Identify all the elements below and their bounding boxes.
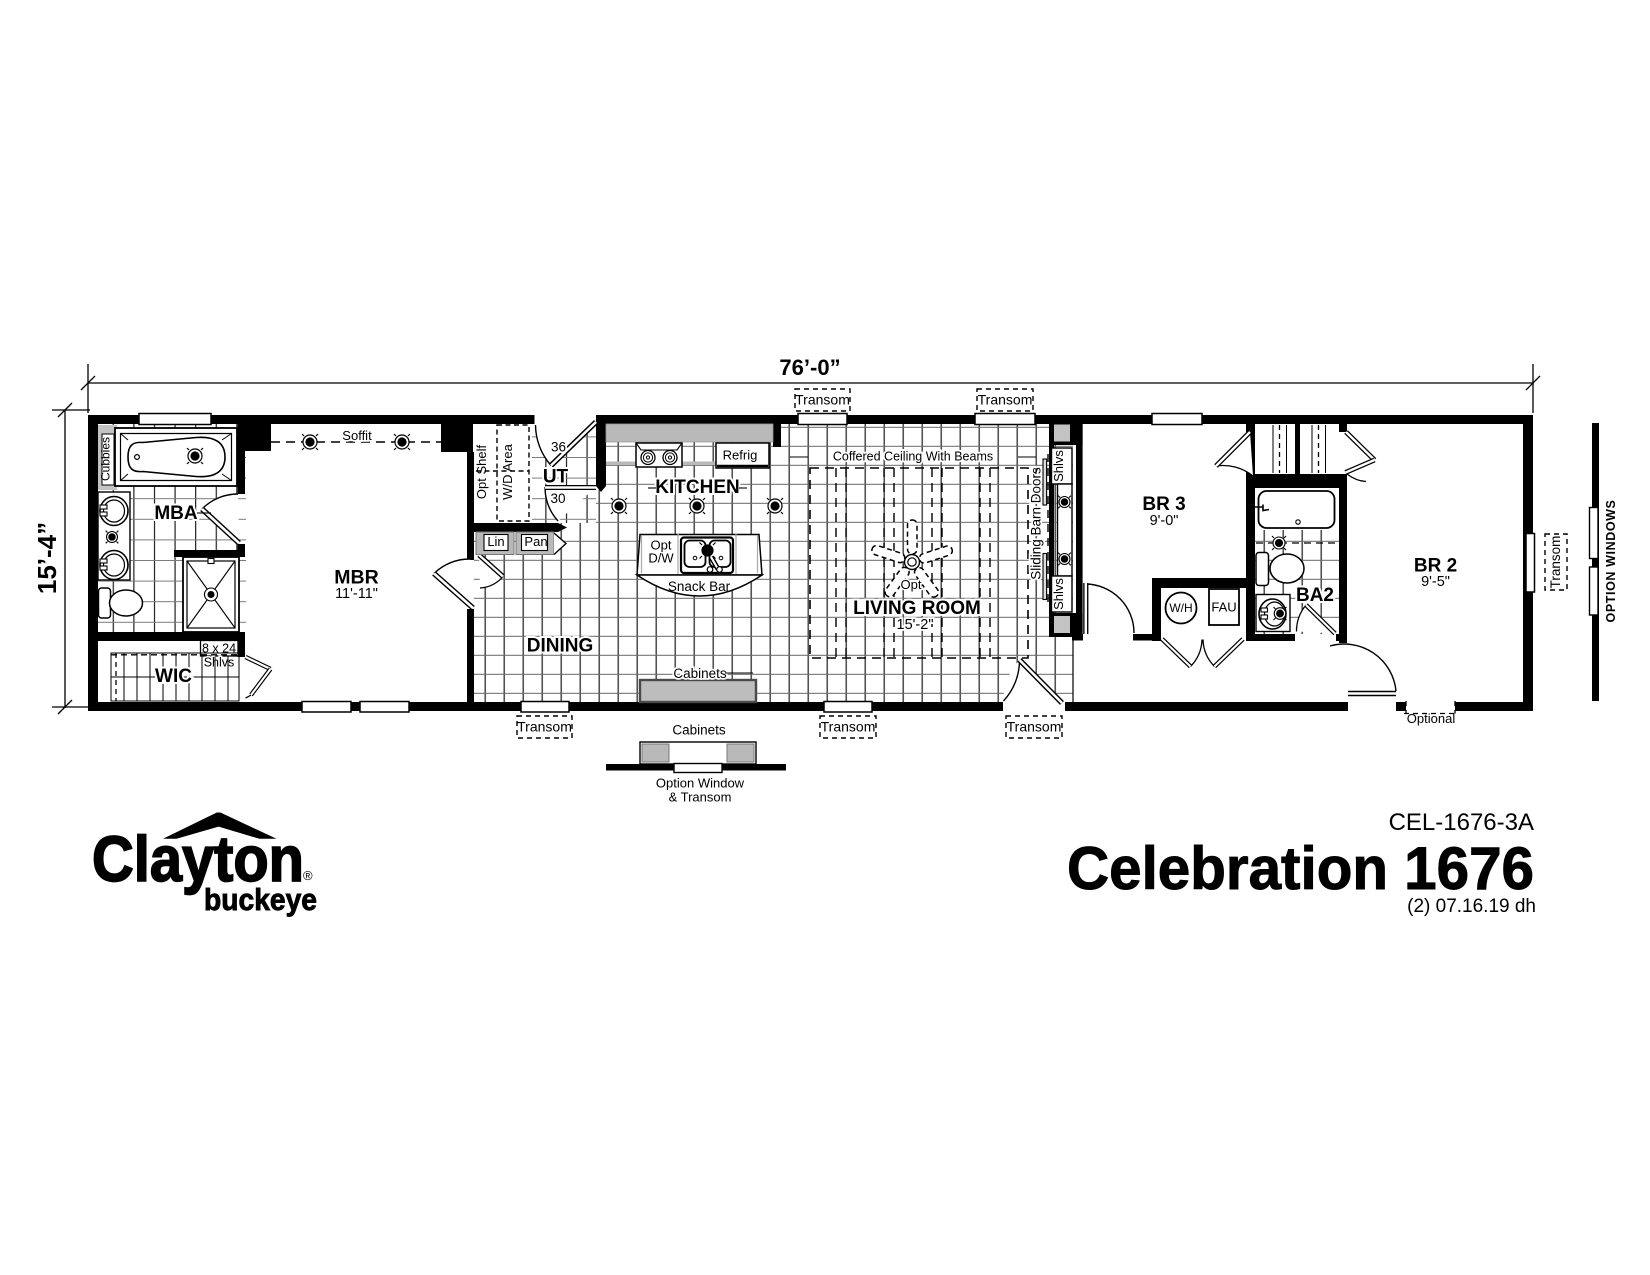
svg-text:®: ®: [303, 868, 313, 883]
svg-text:15’-4”: 15’-4”: [32, 522, 62, 594]
svg-text:WIC: WIC: [155, 666, 192, 687]
svg-text:MBA: MBA: [154, 503, 198, 524]
svg-text:(2) 07.16.19 dh: (2) 07.16.19 dh: [1407, 896, 1536, 917]
svg-text:36: 36: [551, 440, 566, 455]
svg-text:& Transom: & Transom: [669, 790, 732, 805]
svg-text:15'-2": 15'-2": [897, 617, 934, 633]
svg-text:Transom: Transom: [978, 392, 1033, 408]
svg-text:BR 3: BR 3: [1142, 494, 1185, 515]
svg-text:Sliding Barn Doors: Sliding Barn Doors: [1029, 467, 1044, 580]
svg-text:Shlvs: Shlvs: [204, 656, 235, 670]
svg-text:FAU: FAU: [1211, 600, 1236, 615]
svg-text:LIVING ROOM: LIVING ROOM: [853, 598, 981, 619]
svg-text:Shlvs: Shlvs: [1051, 578, 1066, 610]
svg-text:Lin: Lin: [487, 534, 504, 549]
svg-text:Cubbies: Cubbies: [99, 437, 113, 481]
svg-text:D/W: D/W: [648, 551, 674, 566]
svg-text:9'-5": 9'-5": [1421, 574, 1450, 590]
svg-text:DINING: DINING: [527, 636, 594, 657]
svg-text:Cabinets: Cabinets: [673, 666, 727, 681]
svg-text:Transom: Transom: [517, 719, 572, 735]
svg-text:Pan: Pan: [524, 534, 547, 549]
svg-text:Celebration 1676: Celebration 1676: [1067, 835, 1534, 902]
svg-text:Cabinets: Cabinets: [672, 723, 726, 738]
svg-text:Optional: Optional: [1407, 711, 1456, 726]
svg-text:Transom: Transom: [1007, 719, 1062, 735]
svg-text:OPTION WINDOWS: OPTION WINDOWS: [1604, 500, 1618, 623]
svg-text:Transom: Transom: [1548, 536, 1563, 589]
svg-text:W/D Area: W/D Area: [500, 443, 515, 499]
svg-text:Coffered Ceiling With Beams: Coffered Ceiling With Beams: [833, 450, 993, 464]
svg-text:Transom: Transom: [821, 719, 876, 735]
svg-text:UT: UT: [543, 467, 569, 488]
svg-text:Transom: Transom: [795, 392, 850, 408]
svg-text:Opt Shelf: Opt Shelf: [474, 445, 489, 500]
svg-text:9'-0": 9'-0": [1150, 513, 1179, 529]
svg-text:CEL-1676-3A: CEL-1676-3A: [1389, 809, 1534, 836]
svg-text:Refrig: Refrig: [723, 448, 758, 463]
svg-text:KITCHEN: KITCHEN: [655, 477, 739, 498]
svg-text:Snack Bar: Snack Bar: [668, 579, 731, 594]
svg-text:30: 30: [550, 491, 565, 506]
svg-text:W/H: W/H: [1169, 601, 1192, 615]
svg-text:11'-11": 11'-11": [335, 586, 378, 602]
svg-text:Soffit: Soffit: [342, 428, 372, 443]
svg-text:Option Window: Option Window: [656, 776, 745, 791]
svg-text:Shlvs: Shlvs: [1051, 450, 1066, 482]
svg-text:76’-0”: 76’-0”: [779, 355, 840, 380]
svg-text:buckeye: buckeye: [204, 882, 317, 917]
svg-text:Opt: Opt: [901, 577, 922, 592]
svg-text:BA2: BA2: [1296, 585, 1334, 606]
